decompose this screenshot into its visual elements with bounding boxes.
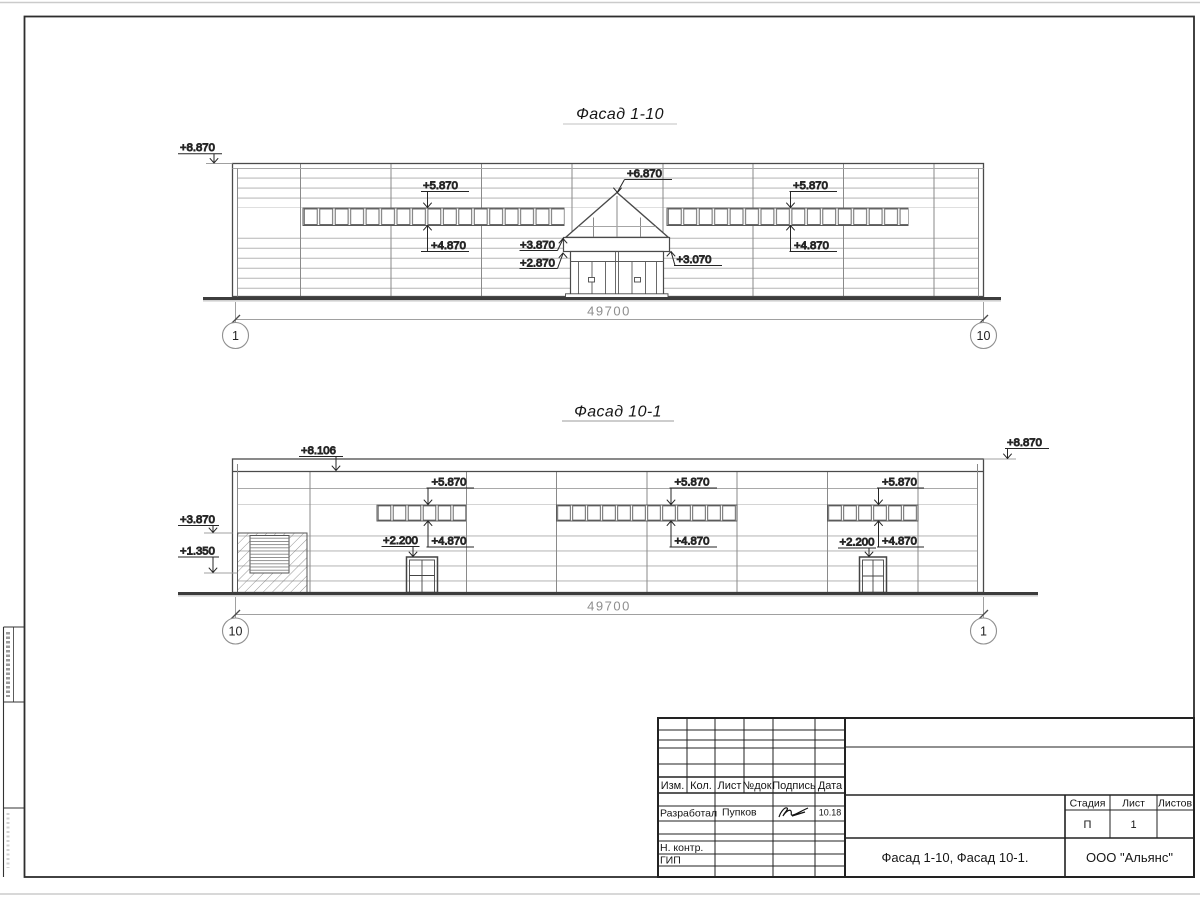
svg-text:+3.870: +3.870 (180, 514, 215, 526)
svg-text:+6.870: +6.870 (627, 168, 662, 180)
signature (779, 808, 808, 817)
window-band-left (303, 208, 564, 226)
svg-text:+2.200: +2.200 (383, 535, 418, 547)
svg-text:+4.870: +4.870 (882, 536, 917, 548)
svg-text:1: 1 (980, 625, 987, 639)
window-band-1 (377, 505, 466, 521)
louver-block (238, 533, 308, 593)
door-handle-left (589, 278, 595, 283)
developed-date: 10.18 (819, 808, 842, 818)
n-kontr-label: Н. контр. (660, 842, 703, 854)
stage-value: П (1084, 819, 1092, 831)
elevation-mark-1350-left: +1.350 (178, 546, 238, 574)
side-stamp (4, 627, 25, 877)
svg-text:+5.870: +5.870 (882, 477, 917, 489)
svg-text:+3.870: +3.870 (520, 240, 555, 252)
svg-text:1: 1 (232, 329, 239, 343)
axis-bubble-10: 10 (971, 323, 997, 349)
dimension-value: 49700 (587, 304, 631, 319)
elevation-mark-8870-left: +8.870 (178, 142, 233, 164)
svg-text:+5.870: +5.870 (793, 180, 828, 192)
svg-text:+5.870: +5.870 (423, 180, 458, 192)
elevation-mark-8870-right: +8.870 (984, 437, 1050, 459)
col-header-izm: Изм. (661, 780, 685, 792)
dimension-49700: 49700 (231, 302, 988, 324)
wall-panels-upper (238, 473, 978, 505)
svg-text:10: 10 (977, 329, 991, 343)
company-name: ООО "Альянс" (1086, 850, 1173, 865)
sheets-label: Листов (1158, 798, 1193, 810)
developed-by-name: Пупков (722, 807, 757, 819)
facades-drawing: Фасад 1-10 (0, 0, 1200, 900)
stage-label: Стадия (1070, 798, 1106, 810)
svg-text:+5.870: +5.870 (432, 477, 467, 489)
svg-text:+2.200: +2.200 (840, 537, 875, 549)
axis-bubble-1: 1 (971, 618, 997, 644)
entrance (564, 193, 670, 298)
elevation-mark-3870-left: +3.870 (178, 514, 233, 533)
window-band-right (667, 208, 908, 226)
facade-1-10: Фасад 1-10 (178, 106, 1001, 349)
drawing-sheet: Фасад 1-10 (0, 0, 1200, 900)
axis-bubble-10: 10 (223, 618, 249, 644)
col-header-podpis: Подпись (772, 780, 816, 792)
col-header-ndok: №док. (742, 780, 774, 792)
svg-text:+3.070: +3.070 (677, 254, 712, 266)
gip-label: ГИП (660, 855, 681, 867)
svg-text:+8.870: +8.870 (1007, 437, 1042, 449)
svg-text:+1.350: +1.350 (180, 546, 215, 558)
elevation-mark-8106: +8.106 (299, 445, 343, 471)
col-header-list: Лист (718, 780, 742, 792)
developed-by-label: Разработал (660, 808, 717, 820)
sheet-label: Лист (1122, 798, 1145, 810)
sheet-value: 1 (1130, 819, 1136, 831)
svg-text:+4.870: +4.870 (675, 536, 710, 548)
facade-10-1-title: Фасад 10-1 (574, 404, 662, 421)
axis-bubble-1: 1 (223, 323, 249, 349)
svg-text:10: 10 (229, 625, 243, 639)
svg-text:+8.106: +8.106 (301, 445, 336, 457)
window-band-2 (557, 505, 738, 521)
svg-text:+4.870: +4.870 (431, 240, 466, 252)
entrance-fascia (564, 238, 670, 252)
svg-text:+4.870: +4.870 (432, 536, 467, 548)
door-handle-right (635, 278, 641, 283)
window-band-3 (828, 505, 919, 521)
svg-text:+5.870: +5.870 (675, 477, 710, 489)
entrance-glazing (571, 252, 664, 297)
dimension-49700: 49700 (231, 597, 988, 620)
dimension-value: 49700 (587, 599, 631, 614)
svg-text:+2.870: +2.870 (520, 258, 555, 270)
svg-text:+4.870: +4.870 (794, 240, 829, 252)
title-block: Изм. Кол. Лист №док. Подпись Дата Разраб… (658, 718, 1194, 877)
svg-text:+8.870: +8.870 (180, 142, 215, 154)
document-title: Фасад 1-10, Фасад 10-1. (882, 850, 1029, 865)
facade-1-10-title: Фасад 1-10 (576, 106, 664, 123)
facade-10-1: Фасад 10-1 (178, 404, 1049, 645)
col-header-kol: Кол. (690, 780, 712, 792)
col-header-data: Дата (818, 780, 843, 792)
